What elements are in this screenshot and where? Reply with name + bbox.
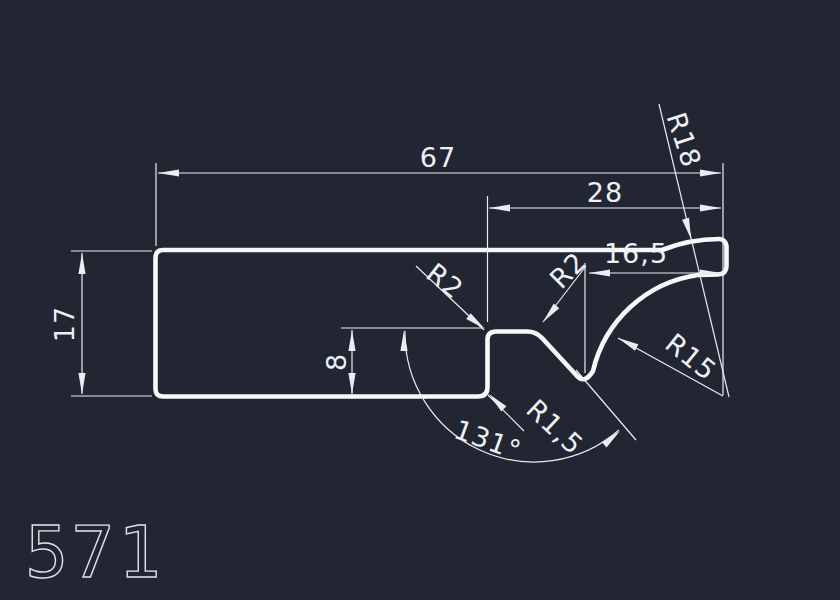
arrowhead xyxy=(78,253,85,274)
dim-total-width-label: 67 xyxy=(420,142,456,173)
arrowhead xyxy=(700,204,721,211)
cad-viewport[interactable]: 67 28 16,5 17 8 131° xyxy=(0,0,840,600)
dimension-left-height[interactable]: 17 xyxy=(49,251,153,396)
dim-step-height-label: 8 xyxy=(321,353,352,371)
arrowhead xyxy=(400,330,407,351)
dimension-right-length[interactable]: 16,5 xyxy=(589,238,721,277)
radius-step-bottom-label: R1,5 xyxy=(520,393,589,460)
arrowhead xyxy=(78,373,85,394)
dimension-total-width[interactable]: 67 xyxy=(158,142,721,177)
drawing-canvas[interactable]: 67 28 16,5 17 8 131° xyxy=(0,0,840,600)
arrowhead xyxy=(489,204,510,211)
arrowhead xyxy=(602,428,623,447)
radius-plateau-left[interactable]: R2 xyxy=(416,257,487,332)
arrowhead xyxy=(348,330,355,351)
radius-plateau-left-label: R2 xyxy=(421,257,470,305)
arrowhead xyxy=(348,373,355,394)
arrowhead xyxy=(589,269,610,276)
arrowhead xyxy=(682,218,694,240)
arrowhead xyxy=(700,169,721,176)
extension-line-slope xyxy=(576,370,636,440)
dim-right-length-label: 16,5 xyxy=(604,238,668,269)
arrowhead xyxy=(466,313,487,332)
dim-left-height-label: 17 xyxy=(49,306,80,342)
dim-right-width-label: 28 xyxy=(587,177,623,208)
arrowhead xyxy=(486,391,506,411)
dimension-right-width[interactable]: 28 xyxy=(489,177,721,212)
arrowhead xyxy=(616,335,638,351)
radius-inner-curve[interactable]: R15 xyxy=(616,327,723,396)
arrowhead xyxy=(158,169,179,176)
dimension-step-height[interactable]: 8 xyxy=(321,328,483,394)
part-number-label: 571 xyxy=(25,510,164,594)
